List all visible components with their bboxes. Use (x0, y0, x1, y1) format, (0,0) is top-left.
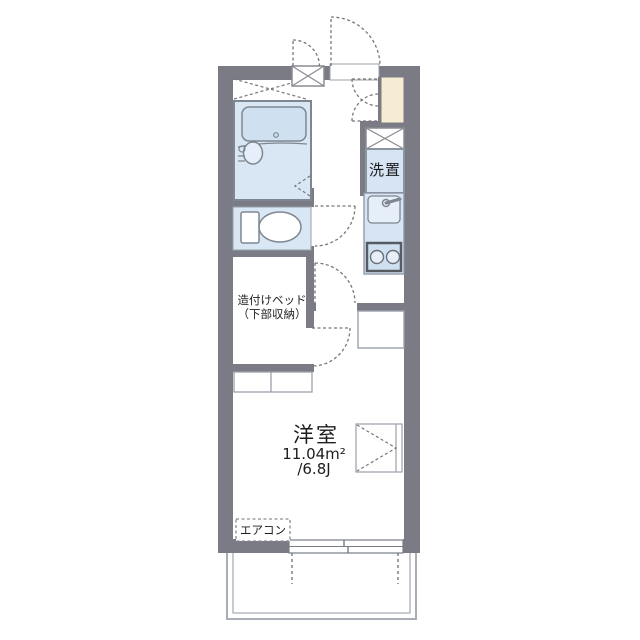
meterbox-door-symbol (293, 40, 320, 66)
floorplan-canvas: 洗置 造付けベッド （下部収納） 洋室 11.04m² /6.8J エアコン (0, 0, 640, 640)
entrance-opening (330, 64, 379, 80)
east-window (356, 424, 402, 472)
bed-step-storage (234, 372, 312, 392)
aircon-label: エアコン (240, 524, 286, 536)
bathroom (234, 101, 311, 200)
wall-bottom-right (403, 539, 420, 553)
bed-alcove-door-symbol (312, 328, 350, 366)
western-room-area-jo: /6.8J (297, 462, 330, 478)
wall-bed-east (306, 246, 314, 328)
genkan-storage-face (378, 77, 381, 123)
wall-bath-toilet (233, 200, 311, 207)
stove-burner-left (371, 251, 384, 264)
bed-label-line2: （下部収納） (238, 308, 307, 320)
bed-label-line1: 造付けベッド (238, 294, 307, 306)
genkan-storage (381, 77, 404, 123)
storage-double-door-symbol (352, 79, 379, 121)
floorplan-drawing (0, 0, 640, 640)
bed-step-box (234, 372, 312, 392)
toilet-door-symbol (315, 206, 355, 246)
balcony-outline-inner (233, 553, 410, 613)
bath-sink (244, 142, 263, 164)
wall-right (404, 66, 420, 553)
wall-hall-partition (357, 303, 404, 311)
entrance-door-symbol (331, 17, 380, 66)
toilet-room (233, 207, 311, 250)
wall-toilet-bottom (233, 250, 311, 257)
fridge-space (358, 311, 404, 348)
western-room-name: 洋室 (293, 424, 339, 446)
interior-doors (312, 206, 355, 366)
washer-space-label: 洗置 (369, 163, 401, 179)
main-room-door-symbol (315, 263, 355, 303)
wall-left (218, 66, 233, 553)
wall-bed-bottom (233, 364, 314, 372)
toilet-tank (241, 212, 259, 243)
balcony-outline-outer (227, 553, 416, 619)
toilet-bowl (259, 212, 301, 242)
stove-burner-right (387, 251, 400, 264)
